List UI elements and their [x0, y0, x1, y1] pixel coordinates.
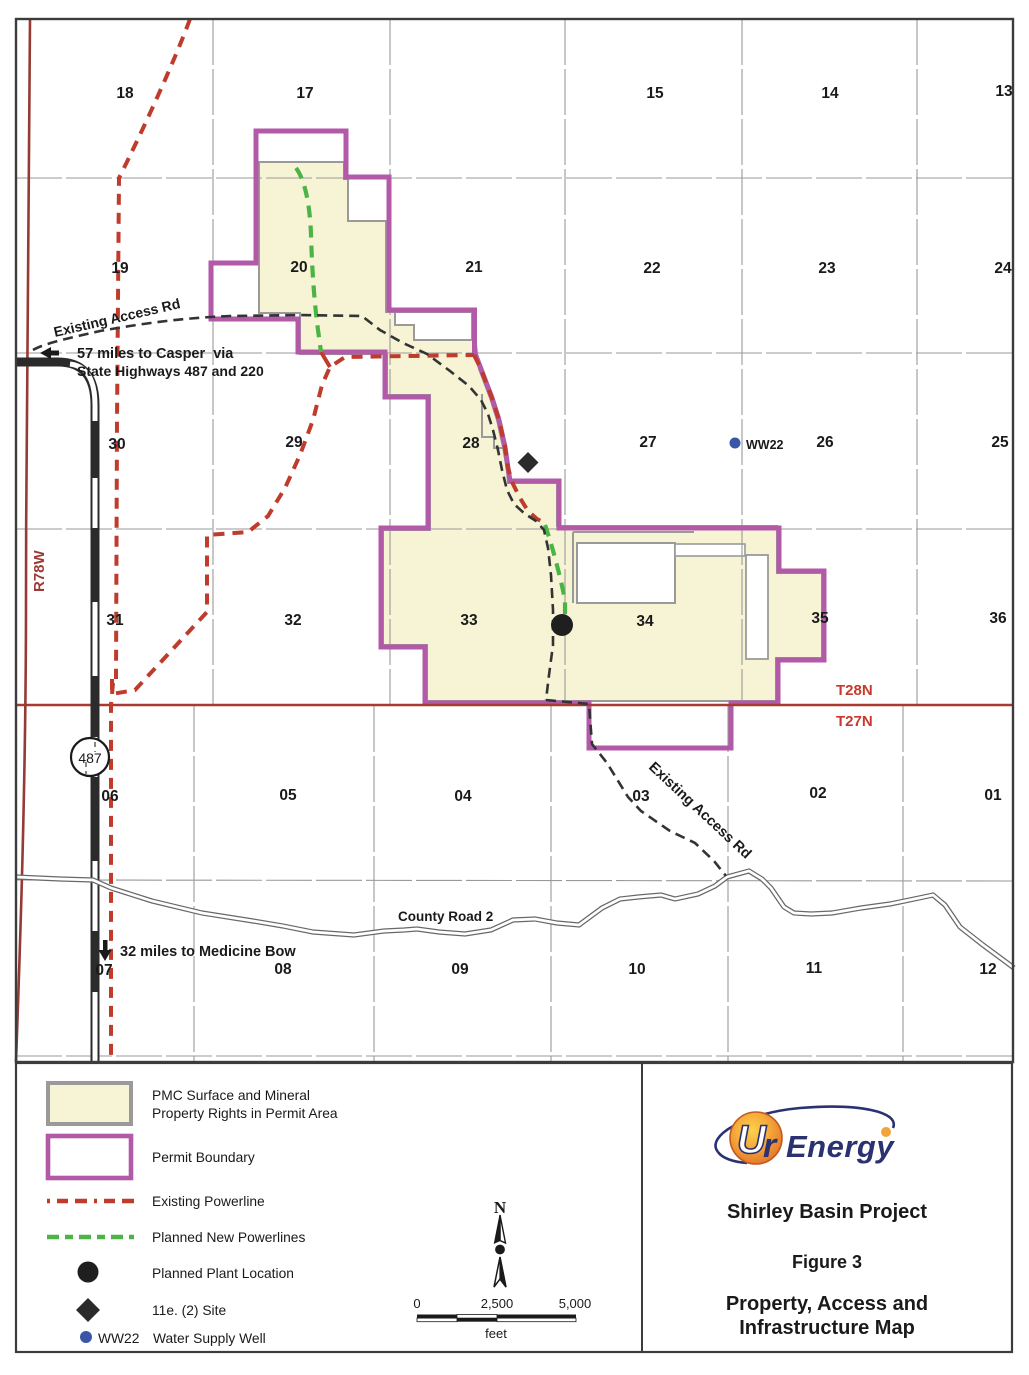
svg-text:2,500: 2,500 [481, 1296, 514, 1311]
svg-text:21: 21 [465, 259, 483, 276]
svg-text:35: 35 [811, 610, 829, 627]
svg-text:27: 27 [639, 434, 656, 451]
svg-text:Energy: Energy [786, 1129, 895, 1164]
svg-text:Permit Boundary: Permit Boundary [152, 1150, 255, 1165]
svg-text:T27N: T27N [836, 713, 873, 730]
svg-text:03: 03 [632, 788, 650, 805]
svg-text:22: 22 [643, 260, 660, 277]
svg-text:31: 31 [106, 612, 124, 629]
svg-text:12: 12 [979, 961, 996, 978]
svg-text:34: 34 [636, 613, 654, 630]
svg-text:Figure 3: Figure 3 [792, 1252, 862, 1272]
svg-text:20: 20 [290, 259, 307, 276]
svg-text:09: 09 [451, 961, 469, 978]
svg-text:19: 19 [111, 260, 129, 277]
svg-text:25: 25 [991, 434, 1009, 451]
svg-text:T28N: T28N [836, 682, 873, 699]
svg-text:06: 06 [101, 788, 119, 805]
svg-text:01: 01 [984, 787, 1002, 804]
svg-text:18: 18 [116, 85, 134, 102]
svg-text:State Highways 487 and 220: State Highways 487 and 220 [77, 363, 264, 379]
svg-text:Planned Plant Location: Planned Plant Location [152, 1266, 294, 1281]
svg-text:04: 04 [454, 788, 472, 805]
svg-text:15: 15 [646, 85, 664, 102]
svg-text:07: 07 [95, 962, 112, 979]
svg-text:26: 26 [816, 434, 834, 451]
svg-text:11e. (2) Site: 11e. (2) Site [152, 1303, 226, 1318]
svg-text:13: 13 [995, 83, 1013, 100]
svg-text:10: 10 [628, 961, 645, 978]
svg-text:WW22: WW22 [98, 1331, 139, 1346]
svg-text:05: 05 [279, 787, 297, 804]
svg-text:29: 29 [285, 434, 303, 451]
svg-text:Property, Access and: Property, Access and [726, 1293, 928, 1315]
svg-text:11: 11 [806, 960, 823, 977]
svg-text:feet: feet [485, 1326, 507, 1341]
svg-text:17: 17 [296, 85, 313, 102]
svg-text:Shirley Basin Project: Shirley Basin Project [727, 1201, 927, 1223]
svg-text:Infrastructure Map: Infrastructure Map [739, 1317, 915, 1339]
svg-text:Planned New Powerlines: Planned New Powerlines [152, 1230, 305, 1245]
svg-text:County Road 2: County Road 2 [398, 909, 493, 924]
svg-text:Property Rights in Permit Area: Property Rights in Permit Area [152, 1106, 338, 1121]
svg-text:PMC Surface and Mineral: PMC Surface and Mineral [152, 1088, 310, 1103]
svg-text:5,000: 5,000 [559, 1296, 592, 1311]
svg-text:0: 0 [413, 1296, 420, 1311]
svg-text:23: 23 [818, 260, 836, 277]
svg-text:32: 32 [284, 612, 301, 629]
svg-text:02: 02 [809, 785, 826, 802]
svg-text:08: 08 [274, 961, 292, 978]
svg-text:r: r [763, 1127, 778, 1165]
svg-text:WW22: WW22 [746, 438, 784, 452]
svg-text:32 miles to Medicine Bow: 32 miles to Medicine Bow [120, 944, 296, 960]
svg-text:487: 487 [78, 750, 102, 766]
svg-text:57 miles to Casper via: 57 miles to Casper via [77, 346, 234, 362]
svg-text:N: N [494, 1198, 507, 1217]
svg-text:36: 36 [989, 610, 1007, 627]
svg-text:14: 14 [821, 85, 839, 102]
svg-text:33: 33 [460, 612, 478, 629]
svg-text:Existing Powerline: Existing Powerline [152, 1194, 265, 1209]
svg-text:24: 24 [994, 260, 1012, 277]
svg-text:Water Supply Well: Water Supply Well [153, 1331, 266, 1346]
svg-text:30: 30 [108, 436, 125, 453]
svg-text:28: 28 [462, 435, 480, 452]
svg-text:R78W: R78W [31, 549, 48, 592]
